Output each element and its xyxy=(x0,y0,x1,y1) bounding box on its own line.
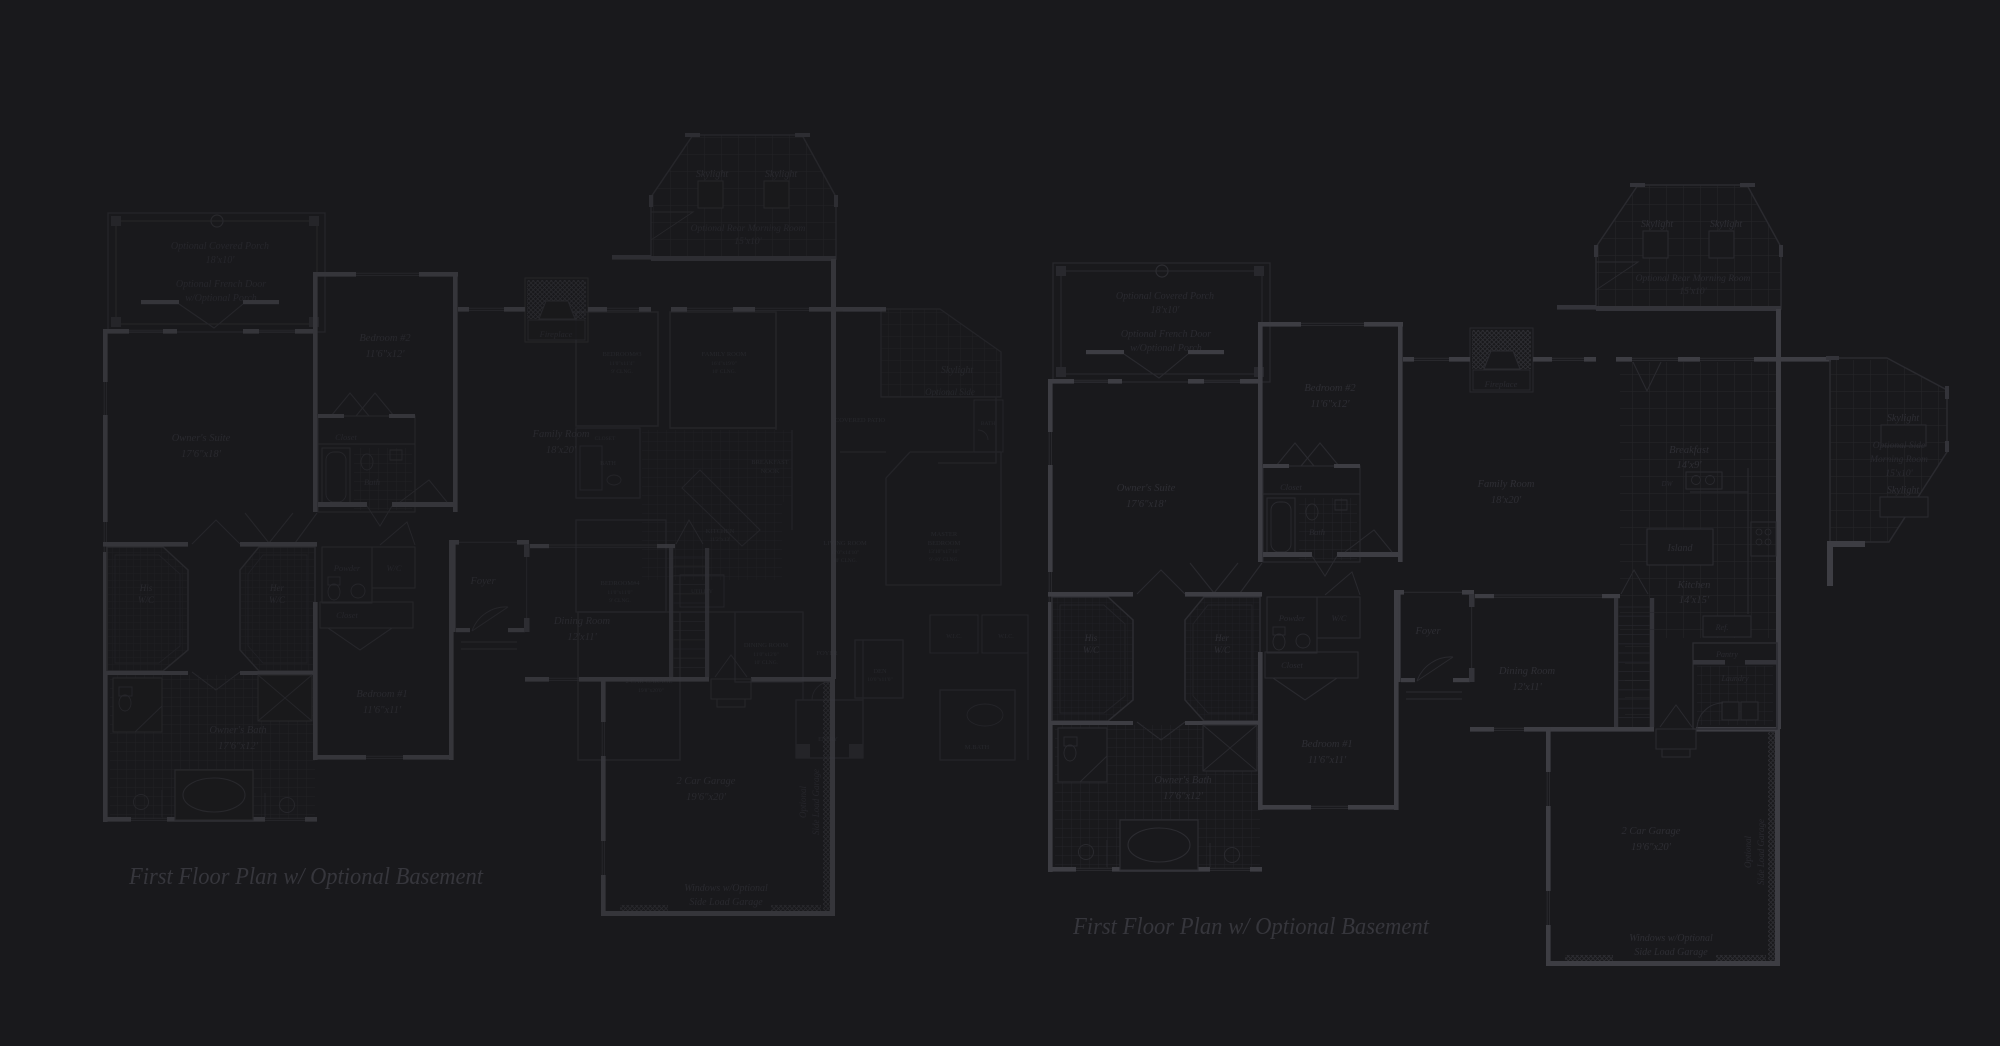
svg-text:10'0"x11'0": 10'0"x11'0" xyxy=(867,677,893,683)
svg-text:19'8"x20'0": 19'8"x20'0" xyxy=(638,688,664,694)
svg-text:KITCHEN: KITCHEN xyxy=(706,528,735,535)
svg-text:CLOSET: CLOSET xyxy=(595,436,616,442)
svg-text:M.BATH: M.BATH xyxy=(965,744,990,751)
svg-text:9'-10' CLNG.: 9'-10' CLNG. xyxy=(929,557,959,563)
svg-text:MASTER: MASTER xyxy=(931,531,958,538)
svg-text:Skylight: Skylight xyxy=(941,365,973,376)
svg-text:11'0"x11'0": 11'0"x11'0" xyxy=(607,590,632,596)
svg-text:BEDROOM#3: BEDROOM#3 xyxy=(602,351,641,358)
svg-text:W.I.C.: W.I.C. xyxy=(946,634,962,640)
svg-text:11'0"x11'4": 11'0"x11'4" xyxy=(609,361,634,367)
svg-text:First Floor Plan w/ Optional: First Floor Plan w/ Optional Basement xyxy=(1072,914,1430,940)
svg-text:10' CLNG.: 10' CLNG. xyxy=(754,660,779,666)
svg-text:NOOK: NOOK xyxy=(761,468,780,475)
svg-text:W.I.C.: W.I.C. xyxy=(998,634,1014,640)
svg-text:10' CLNG.: 10' CLNG. xyxy=(712,369,737,375)
svg-text:10' CLNG.: 10' CLNG. xyxy=(833,558,858,564)
svg-text:FAMILY ROOM: FAMILY ROOM xyxy=(702,351,747,358)
svg-text:DINING ROOM: DINING ROOM xyxy=(744,642,788,649)
svg-text:BEDROOM: BEDROOM xyxy=(928,540,961,547)
svg-text:DEN: DEN xyxy=(873,668,887,675)
svg-text:9' CLNG.: 9' CLNG. xyxy=(611,369,633,375)
svg-text:11'2"x13': 11'2"x13' xyxy=(710,537,731,543)
svg-text:First Floor Plan w/ Optional: First Floor Plan w/ Optional Basement xyxy=(128,864,484,890)
svg-text:LIVING ROOM: LIVING ROOM xyxy=(823,540,867,547)
svg-text:COVERED PATIO: COVERED PATIO xyxy=(835,417,885,424)
svg-text:BREAKFAST: BREAKFAST xyxy=(751,459,788,466)
svg-text:11'0"x12'0": 11'0"x12'0" xyxy=(753,652,779,658)
svg-text:9' CLNG.: 9' CLNG. xyxy=(609,598,631,604)
svg-text:13'10"x17'10": 13'10"x17'10" xyxy=(928,549,959,555)
svg-text:BEDROOM#4: BEDROOM#4 xyxy=(600,580,640,587)
svg-text:BATH: BATH xyxy=(981,421,995,427)
svg-text:BATH: BATH xyxy=(600,461,616,467)
svg-text:Optional Side: Optional Side xyxy=(925,387,975,397)
svg-text:16'4"x19'0": 16'4"x19'0" xyxy=(711,361,737,367)
